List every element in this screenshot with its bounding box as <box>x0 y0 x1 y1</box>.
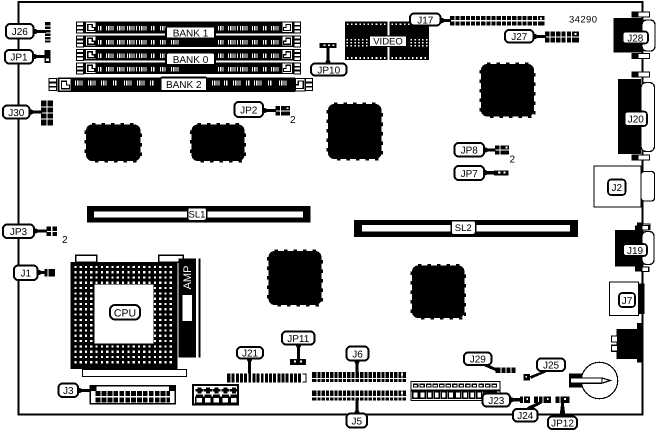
svg-text:2: 2 <box>510 155 516 166</box>
svg-text:J2: J2 <box>611 183 622 194</box>
svg-text:J3: J3 <box>63 386 74 397</box>
svg-text:J26: J26 <box>12 27 29 38</box>
svg-text:VIDEO: VIDEO <box>373 36 403 47</box>
svg-text:J7: J7 <box>622 296 633 307</box>
svg-text:J25: J25 <box>543 361 560 372</box>
svg-text:JP2: JP2 <box>240 105 258 116</box>
svg-text:J28: J28 <box>627 33 644 44</box>
svg-text:JP3: JP3 <box>10 227 28 238</box>
svg-text:JP10: JP10 <box>317 65 340 76</box>
svg-text:J6: J6 <box>352 349 363 360</box>
svg-text:J23: J23 <box>488 396 505 407</box>
svg-text:J19: J19 <box>627 246 644 257</box>
svg-text:J24: J24 <box>517 411 534 422</box>
svg-text:BANK 2: BANK 2 <box>166 80 202 91</box>
svg-text:J1: J1 <box>20 269 31 280</box>
svg-text:J27: J27 <box>511 32 528 43</box>
svg-text:CPU: CPU <box>114 307 136 319</box>
svg-text:BANK 1: BANK 1 <box>173 28 209 39</box>
svg-text:J30: J30 <box>8 108 25 119</box>
svg-text:JP12: JP12 <box>551 419 574 430</box>
svg-text:J17: J17 <box>417 15 434 26</box>
svg-text:SL2: SL2 <box>455 223 472 234</box>
svg-text:J20: J20 <box>628 115 645 126</box>
svg-text:2: 2 <box>62 235 68 246</box>
svg-text:BANK 0: BANK 0 <box>173 55 209 66</box>
svg-text:JP11: JP11 <box>287 334 309 345</box>
svg-text:J29: J29 <box>470 355 487 366</box>
svg-text:SL1: SL1 <box>189 210 206 221</box>
svg-text:JP7: JP7 <box>461 169 479 180</box>
svg-text:J21: J21 <box>242 349 259 360</box>
svg-text:AMP: AMP <box>182 266 194 290</box>
svg-text:JP8: JP8 <box>461 146 479 157</box>
svg-text:2: 2 <box>290 115 296 126</box>
svg-text:JP1: JP1 <box>10 53 28 64</box>
svg-text:J5: J5 <box>351 416 362 427</box>
svg-text:34290: 34290 <box>569 15 597 26</box>
